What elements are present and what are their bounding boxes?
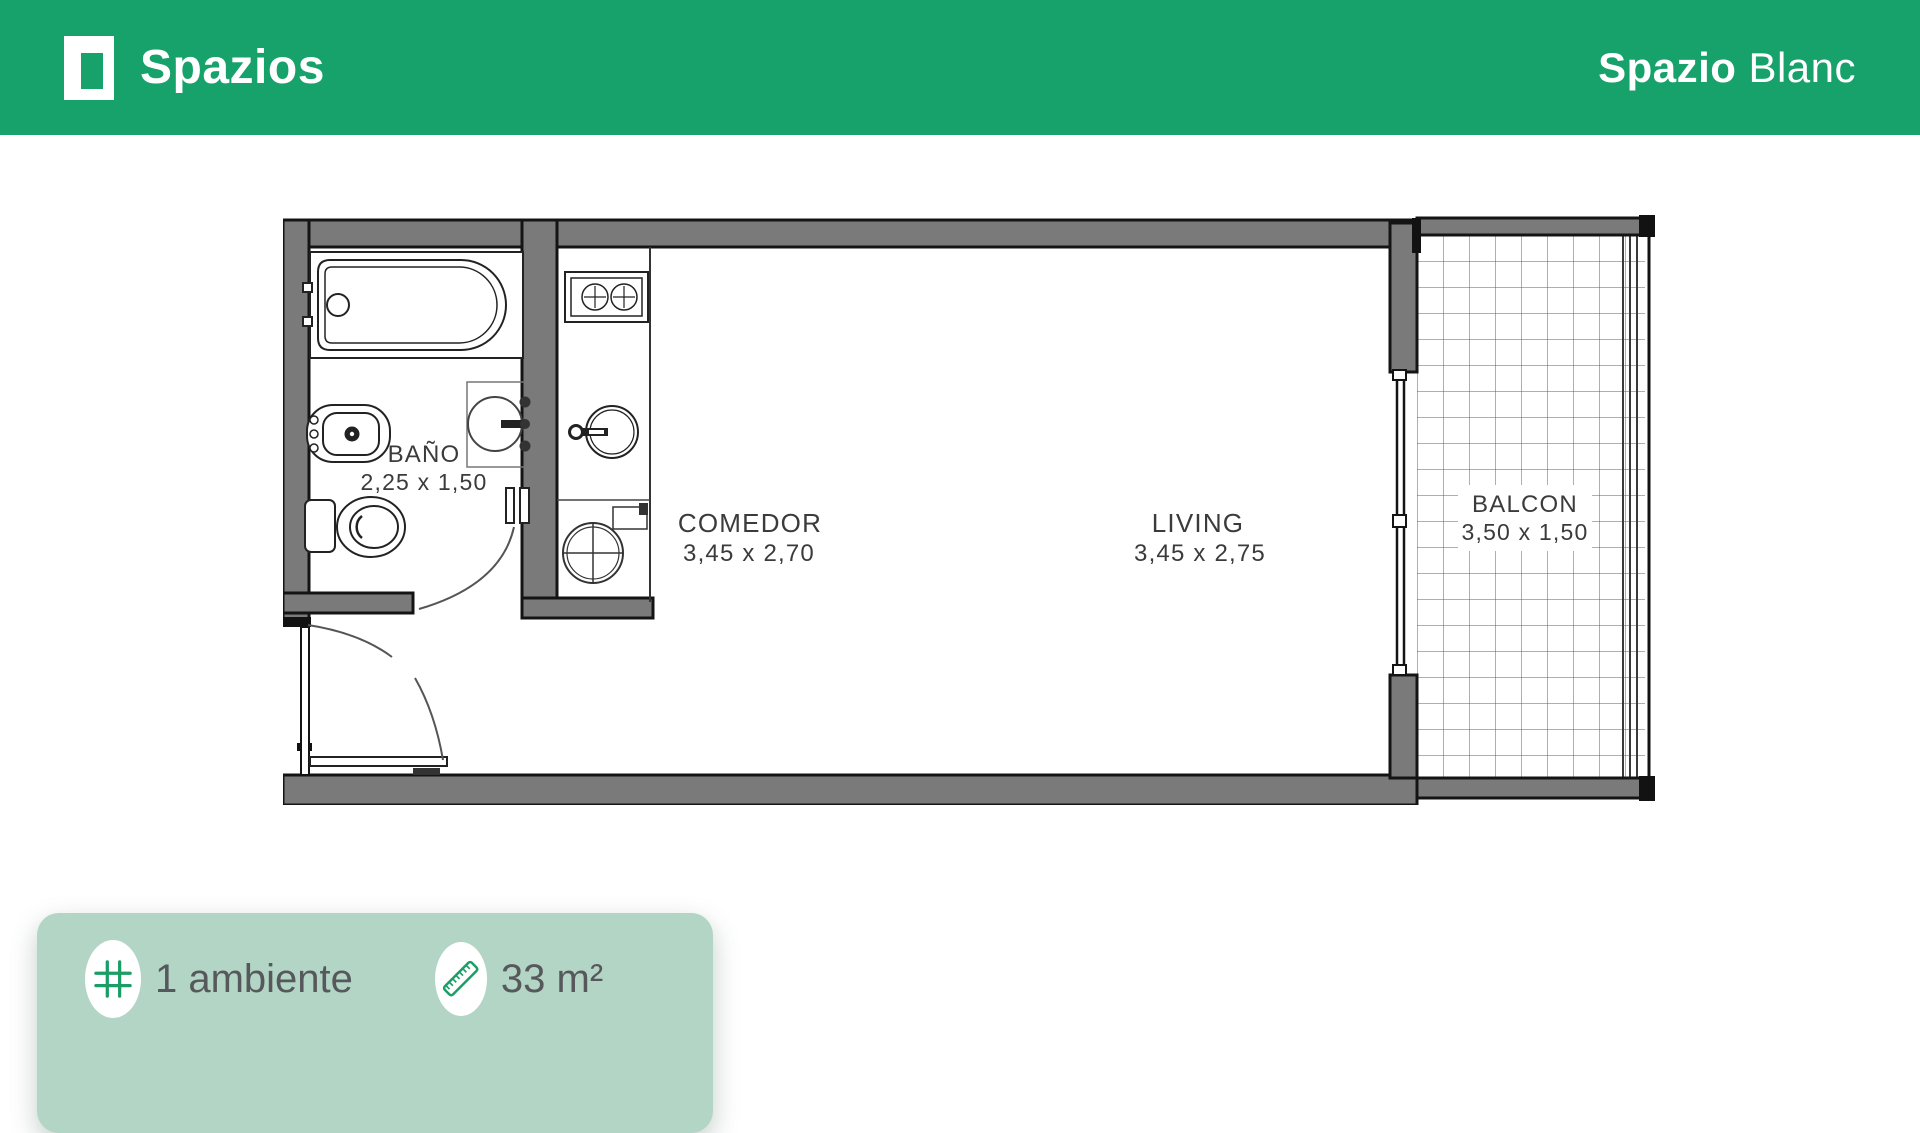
room-dims-bano: 2,25 x 1,50 bbox=[360, 469, 487, 495]
area-label: 33 m² bbox=[501, 957, 603, 1002]
room-dims-living: 3,45 x 2,75 bbox=[1134, 540, 1266, 567]
brand-name: Spazios bbox=[140, 40, 325, 95]
header-bar: Spazios SpazioBlanc bbox=[0, 0, 1920, 135]
toilet bbox=[305, 497, 405, 557]
room-dims-comedor: 3,45 x 2,70 bbox=[683, 540, 815, 567]
floorplan: BAÑO 2,25 x 1,50 COMEDOR 3,45 x 2,70 LIV… bbox=[283, 215, 1655, 805]
bathtub bbox=[303, 252, 523, 358]
entry-door bbox=[310, 678, 447, 775]
bidet bbox=[307, 405, 390, 462]
rooms-count-item: 1 ambiente bbox=[85, 939, 353, 1019]
brand: Spazios bbox=[64, 36, 325, 100]
room-label-bano: BAÑO bbox=[388, 441, 461, 468]
grid-icon bbox=[85, 940, 141, 1018]
rooms-count-label: 1 ambiente bbox=[155, 957, 353, 1002]
project-title-bold: Spazio bbox=[1598, 44, 1736, 91]
ruler-icon bbox=[435, 942, 487, 1016]
summary-card: 1 ambiente 33 m² bbox=[37, 913, 713, 1133]
sliding-door bbox=[1393, 370, 1406, 675]
stove bbox=[565, 272, 648, 322]
bathroom-door-swing bbox=[308, 625, 392, 657]
vestibule-left-wall bbox=[301, 627, 309, 775]
room-label-comedor: COMEDOR bbox=[678, 508, 822, 538]
floorplan-svg: BAÑO 2,25 x 1,50 COMEDOR 3,45 x 2,70 LIV… bbox=[283, 215, 1655, 805]
room-label-living: LIVING bbox=[1152, 508, 1244, 538]
room-dims-balcon: 3,50 x 1,50 bbox=[1461, 519, 1588, 545]
kitchen-sink bbox=[570, 406, 639, 458]
bathroom-door bbox=[419, 488, 529, 609]
project-title: SpazioBlanc bbox=[1598, 44, 1856, 92]
area-item: 33 m² bbox=[353, 939, 603, 1019]
spazios-logo-icon bbox=[64, 36, 114, 100]
room-label-balcon: BALCON bbox=[1472, 491, 1578, 518]
washing-machine bbox=[563, 503, 648, 583]
project-title-light: Blanc bbox=[1748, 44, 1856, 91]
